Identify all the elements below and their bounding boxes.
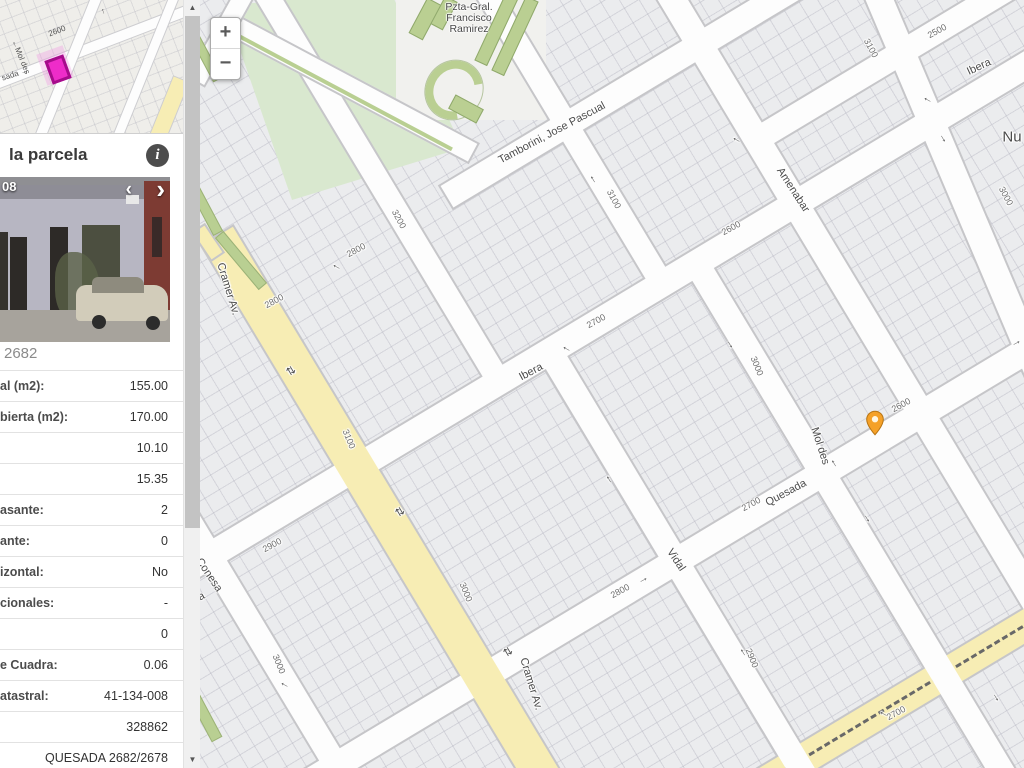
photo-car-wheel	[92, 315, 106, 329]
attribute-row: izontal:No	[0, 556, 183, 587]
attribute-value: 170.00	[130, 410, 168, 424]
photo-next-button[interactable]: ›	[156, 177, 165, 201]
parcel-minimap[interactable]: 2600←Mol dessada →↑	[0, 0, 183, 134]
scroll-down-arrow-icon[interactable]: ▼	[184, 752, 201, 768]
attribute-row: 0	[0, 618, 183, 649]
attribute-value: No	[152, 565, 168, 579]
zoom-out-button[interactable]: −	[211, 49, 240, 79]
attribute-row: 15.35	[0, 463, 183, 494]
parcel-address-number: 2682	[4, 345, 37, 362]
attribute-label: cionales:	[0, 596, 54, 610]
attribute-value: 15.35	[137, 472, 168, 486]
photo-door	[10, 237, 27, 312]
gis-parcel-app: 2600←Mol dessada →↑ la parcela i 08	[0, 0, 1024, 768]
parcel-photo: 08 ‹ ›	[0, 177, 170, 342]
attribute-value: 155.00	[130, 379, 168, 393]
scrollbar-thumb[interactable]	[185, 16, 200, 528]
attribute-row: 328862	[0, 711, 183, 742]
attribute-row: asante:2	[0, 494, 183, 525]
zoom-in-button[interactable]: +	[211, 18, 240, 49]
attribute-row: ante:0	[0, 525, 183, 556]
attribute-value: 328862	[126, 720, 168, 734]
attribute-label: asante:	[0, 503, 44, 517]
attribute-row: 10.10	[0, 432, 183, 463]
sidebar-scrollbar[interactable]: ▲ ▼	[183, 0, 201, 768]
attribute-label: bierta (m2):	[0, 410, 68, 424]
attribute-value: 41-134-008	[104, 689, 168, 703]
attribute-row: atastral:41-134-008	[0, 680, 183, 711]
photo-car-roof	[92, 277, 144, 293]
attribute-row: e Cuadra:0.06	[0, 649, 183, 680]
scroll-up-arrow-icon[interactable]: ▲	[184, 0, 201, 16]
attribute-value: QUESADA 2682/2678	[45, 751, 168, 765]
attribute-value: 0.06	[144, 658, 168, 672]
attribute-label: atastral:	[0, 689, 49, 703]
attribute-value: 0	[161, 534, 168, 548]
attribute-value: 0	[161, 627, 168, 641]
attribute-value: -	[164, 596, 168, 610]
photo-prev-button[interactable]: ‹	[126, 180, 132, 200]
panel-header: la parcela i	[0, 134, 183, 177]
parcel-sidebar: 2600←Mol dessada →↑ la parcela i 08	[0, 0, 183, 768]
map-zoom-control: + −	[210, 17, 241, 80]
panel-title: la parcela	[9, 145, 87, 165]
photo-code-overlay: 08	[2, 179, 16, 194]
attribute-row: al (m2):155.00	[0, 370, 183, 401]
attribute-label: al (m2):	[0, 379, 44, 393]
photo-door	[0, 232, 8, 317]
photo-car-wheel	[146, 316, 160, 330]
map-canvas[interactable]: Pzta-Gral. Francisco Ramirez Tamborini, …	[200, 0, 1024, 768]
attribute-row: bierta (m2):170.00	[0, 401, 183, 432]
attribute-row: cionales:-	[0, 587, 183, 618]
street-grid	[200, 0, 1024, 768]
attribute-value: 2	[161, 503, 168, 517]
info-icon[interactable]: i	[146, 144, 169, 167]
location-marker-pin[interactable]	[866, 410, 884, 436]
attribute-label: ante:	[0, 534, 30, 548]
attribute-label: izontal:	[0, 565, 44, 579]
attribute-row: QUESADA 2682/2678	[0, 742, 183, 768]
photo-window	[152, 217, 162, 257]
attribute-value: 10.10	[137, 441, 168, 455]
attribute-label: e Cuadra:	[0, 658, 58, 672]
parcel-attribute-table: al (m2):155.00bierta (m2):170.0010.1015.…	[0, 370, 183, 768]
